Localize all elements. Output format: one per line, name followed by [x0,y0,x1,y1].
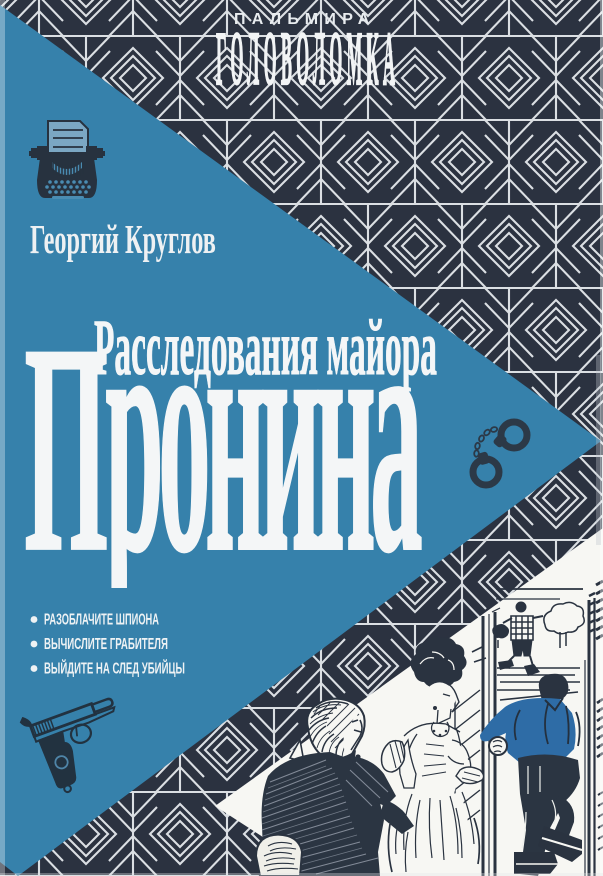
svg-text:ГОЛОВОЛОМКА: ГОЛОВОЛОМКА [216,16,399,100]
svg-text:ВЫЧИСЛИТЕ ГРАБИТЕЛЯ: ВЫЧИСЛИТЕ ГРАБИТЕЛЯ [44,634,168,652]
svg-text:ВЫЙДИТЕ НА СЛЕД УБИЙЦЫ: ВЫЙДИТЕ НА СЛЕД УБИЙЦЫ [44,659,185,677]
svg-text:Георгий Круглов: Георгий Круглов [30,218,216,263]
svg-text:ронина: ронина [105,244,422,625]
svg-text:П: П [24,282,108,614]
svg-text:РАЗОБЛАЧИТЕ ШПИОНА: РАЗОБЛАЧИТЕ ШПИОНА [44,610,159,628]
